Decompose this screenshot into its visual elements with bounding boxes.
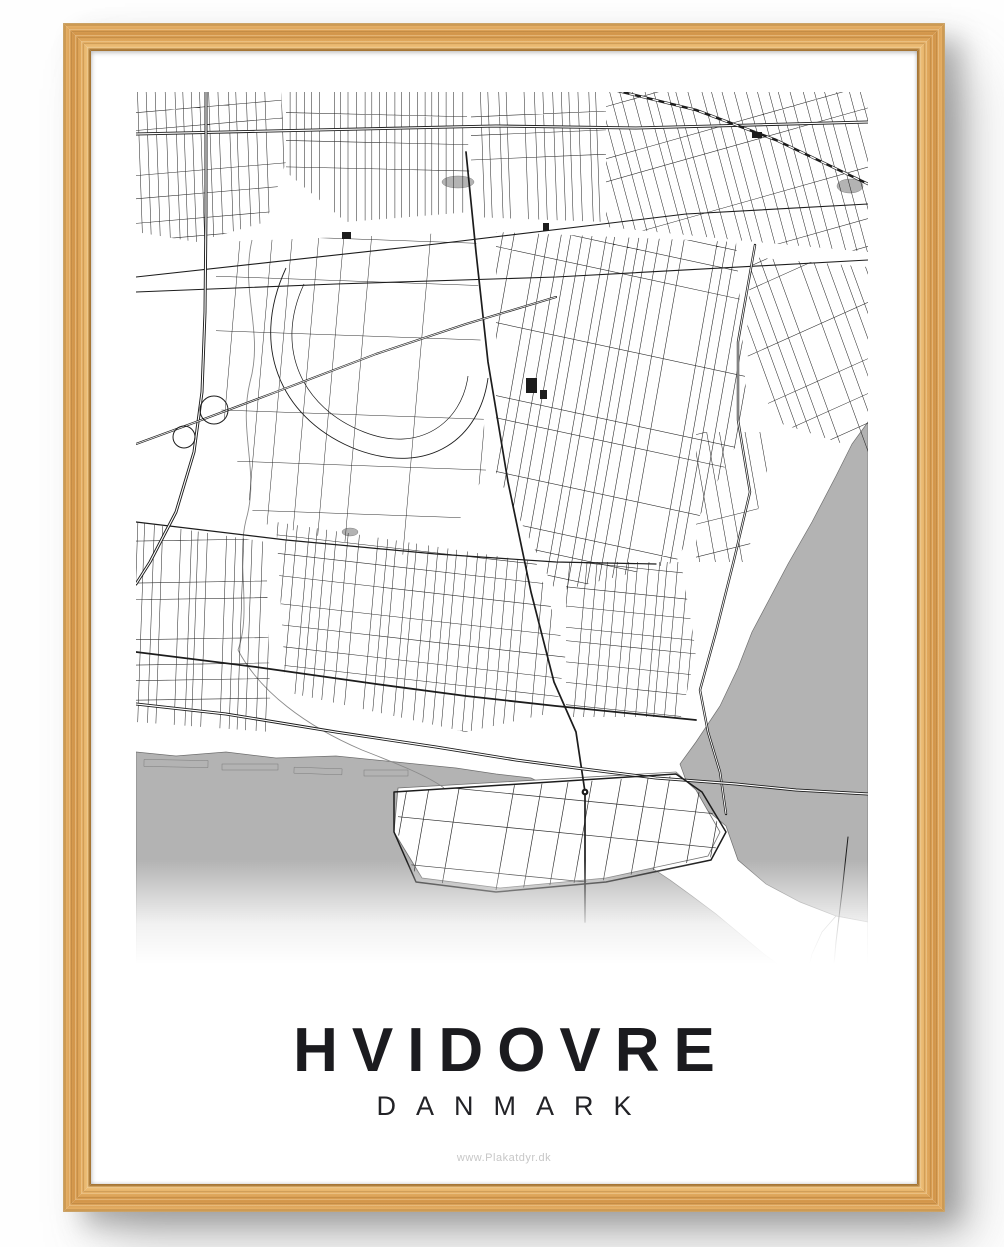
framed-map-poster: HVIDOVRE DANMARK www.Plakatdyr.dk (0, 0, 1004, 1247)
city-map (136, 92, 868, 987)
frame-edge-bottom (63, 1184, 945, 1212)
frame-edge-right (917, 23, 945, 1212)
street-map-svg (136, 92, 868, 987)
frame-edge-top (63, 23, 945, 51)
poster: HVIDOVRE DANMARK www.Plakatdyr.dk (91, 51, 917, 1184)
poster-footer-url: www.Plakatdyr.dk (91, 1152, 917, 1164)
frame-edge-left (63, 23, 91, 1212)
poster-subtitle: DANMARK (91, 1091, 917, 1122)
poster-frame: HVIDOVRE DANMARK www.Plakatdyr.dk (63, 23, 945, 1212)
poster-title: HVIDOVRE (91, 1017, 917, 1085)
